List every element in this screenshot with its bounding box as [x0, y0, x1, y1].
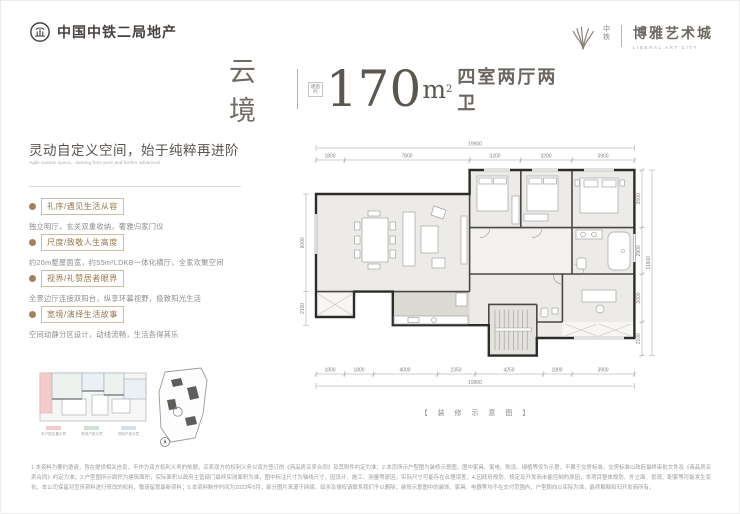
siteplan-thumbnail — [151, 366, 213, 450]
dim-label: 1800 — [551, 368, 562, 374]
dim-bottom-total: 19900 — [468, 380, 482, 386]
dim-label: 2100 — [300, 303, 306, 314]
dim-label: 3600 — [636, 193, 642, 204]
logo-divider — [621, 25, 622, 47]
bullet-dot-icon — [29, 239, 36, 246]
dim-label: 1800 — [353, 368, 364, 374]
legend-swatch — [121, 426, 136, 430]
legend-label: 其他户型示意 — [81, 432, 103, 437]
feature-label: 宽境/演绎生活故事 — [41, 306, 124, 323]
title-divider — [297, 69, 298, 109]
feature-item: 视界/礼赞居者眼界 全景边厅连接双阳台，纵享环幕视野，极致阳光生活 — [29, 270, 259, 304]
disclaimer-text: 1.本资料为要约邀请，旨在提供相关信息，不作为双方权利义务的依据，买卖双方的权利… — [31, 463, 711, 493]
area-prefix: 建面约 — [308, 82, 323, 97]
dim-label: 6000 — [300, 237, 306, 248]
dim-label: 4250 — [503, 368, 514, 374]
keyplan-legend: 本户型位置示意 其他户型示意 其他户型示意 — [41, 426, 139, 437]
intro-heading: 灵动自定义空间，始于纯粹再进阶 — [29, 139, 254, 159]
dim-label: 2900 — [636, 245, 642, 256]
legend-swatch — [84, 426, 99, 430]
dim-label: 7800 — [401, 154, 412, 160]
legend-item: 本户型位置示意 — [41, 426, 66, 437]
keyplan-thumbnail — [37, 369, 149, 425]
feature-desc: 空间动静分区设计，动线流畅，生活各得其乐 — [29, 330, 259, 340]
developer-emblem-icon — [29, 21, 51, 43]
dim-label: 3900 — [597, 368, 608, 374]
room-layout: 四室两厅两卫 — [457, 63, 559, 115]
dim-label: 1800 — [324, 154, 335, 160]
dim-label: 2100 — [636, 333, 642, 344]
dim-label: 3200 — [489, 154, 500, 160]
area-sup: 2 — [446, 84, 452, 95]
dim-label: 3900 — [597, 154, 608, 160]
area-unit: m — [422, 75, 446, 104]
intro-subheading: Agile custom space，starting from pure an… — [29, 159, 254, 166]
floorplan-caption: 【 装 修 示 意 图 】 — [397, 408, 557, 418]
dim-top-total: 19900 — [468, 142, 482, 148]
dim-label: 2350 — [450, 368, 461, 374]
intro-divider — [29, 186, 241, 187]
plan-name: 云境 — [229, 50, 295, 128]
dim-right-total: 11600 — [646, 256, 652, 270]
feature-label: 尺度/致敬人生高度 — [41, 234, 124, 251]
feature-desc: 独立明厅，玄关双重收纳，奢雅归家门仪 — [29, 222, 259, 232]
area-value: 170 — [326, 64, 421, 114]
dim-label: 1800 — [324, 368, 335, 374]
legend-item: 其他户型示意 — [118, 426, 140, 437]
feature-desc: 约20m整屋面宽，约55m²LDKB一体化横厅，全家欢聚空间 — [29, 258, 259, 268]
feature-item: 礼序/遇见生活从容 独立明厅，玄关双重收纳，奢雅归家门仪 — [29, 198, 259, 232]
dim-label: 3200 — [540, 154, 551, 160]
bullet-dot-icon — [29, 311, 36, 318]
project-logo-prefix: 中铁 — [603, 26, 612, 42]
feature-item: 宽境/演绎生活故事 空间动静分区设计，动线流畅，生活各得其乐 — [29, 306, 259, 340]
plan-title: 云境 建面约 170 m2 四室两厅两卫 — [229, 63, 559, 115]
feature-desc: 全景边厅连接双阳台，纵享环幕视野，极致阳光生活 — [29, 294, 259, 304]
legend-swatch — [46, 426, 61, 430]
dim-label: 3000 — [636, 292, 642, 303]
floorplan-drawing: 19900 1800 7800 3200 3200 3900 1800 1800… — [284, 134, 658, 396]
bullet-dot-icon — [29, 275, 36, 282]
project-logo: 中铁 博雅艺术城 LIBERAL ART CITY — [570, 23, 713, 53]
legend-label: 本户型位置示意 — [41, 432, 66, 437]
project-logo-name: 博雅艺术城 — [633, 23, 713, 43]
brochure-page: 中国中铁二局地产 中铁 博雅艺术城 LIBERAL ART CITY 云境 建面… — [0, 0, 740, 514]
fan-leaf-icon — [570, 23, 596, 53]
feature-label: 视界/礼赞居者眼界 — [41, 270, 124, 287]
bullet-dot-icon — [29, 203, 36, 210]
feature-item: 尺度/致敬人生高度 约20m整屋面宽，约55m²LDKB一体化横厅，全家欢聚空间 — [29, 234, 259, 268]
dim-label: 4000 — [399, 368, 410, 374]
developer-logo-text: 中国中铁二局地产 — [57, 22, 177, 42]
developer-logo: 中国中铁二局地产 — [29, 21, 177, 43]
legend-label: 其他户型示意 — [118, 432, 140, 437]
legend-item: 其他户型示意 — [81, 426, 103, 437]
compass-icon — [161, 438, 170, 447]
feature-label: 礼序/遇见生活从容 — [41, 198, 124, 215]
project-logo-subtitle: LIBERAL ART CITY — [633, 45, 713, 50]
